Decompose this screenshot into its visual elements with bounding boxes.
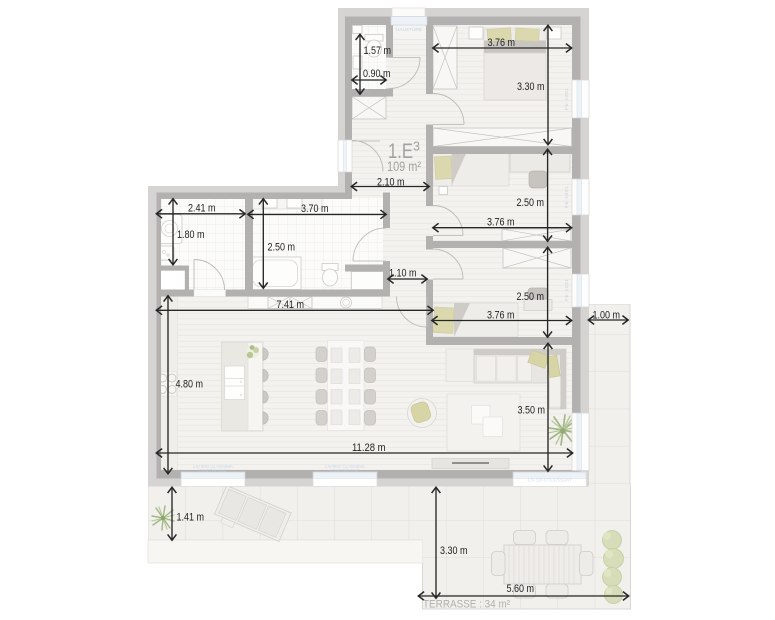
svg-text:109 m²: 109 m²: [387, 159, 421, 174]
svg-text:FE-1001: FE-1001: [564, 279, 570, 301]
svg-text:LIV-120 COULISSANT: LIV-120 COULISSANT: [528, 478, 572, 484]
svg-text:1.80 m: 1.80 m: [177, 229, 205, 241]
svg-text:3.50 m: 3.50 m: [518, 405, 546, 417]
svg-text:1.41 m: 1.41 m: [177, 512, 205, 524]
svg-text:1.10 m: 1.10 m: [389, 268, 417, 280]
svg-text:2.10 m: 2.10 m: [377, 176, 405, 188]
svg-text:2.50 m: 2.50 m: [268, 242, 296, 254]
svg-text:2.50 m: 2.50 m: [517, 291, 545, 303]
svg-text:1.00 m: 1.00 m: [593, 310, 621, 322]
svg-text:FE-1001: FE-1001: [564, 88, 570, 110]
svg-text:3.76 m: 3.76 m: [487, 310, 515, 322]
svg-text:3.76 m: 3.76 m: [487, 217, 515, 229]
svg-text:3.30 m: 3.30 m: [517, 81, 545, 93]
svg-text:HAUSTÜRE: HAUSTÜRE: [396, 26, 422, 33]
svg-text:1.57 m: 1.57 m: [364, 45, 392, 57]
svg-text:TERRASSE : 34 m²: TERRASSE : 34 m²: [423, 599, 510, 611]
svg-text:7.41 m: 7.41 m: [277, 299, 305, 311]
svg-text:11.28 m: 11.28 m: [352, 442, 386, 454]
svg-text:4.80 m: 4.80 m: [176, 379, 204, 391]
svg-text:FENETRE BAIE: FENETRE BAIE: [330, 468, 360, 474]
svg-text:3.30 m: 3.30 m: [440, 545, 468, 557]
svg-text:FE-1001: FE-1001: [564, 186, 570, 208]
svg-text:2.50 m: 2.50 m: [517, 197, 545, 209]
svg-text:2.41 m: 2.41 m: [188, 203, 216, 215]
svg-text:0.90 m: 0.90 m: [363, 68, 391, 80]
svg-text:5.60 m: 5.60 m: [507, 583, 535, 595]
svg-text:3.70 m: 3.70 m: [301, 203, 329, 215]
svg-text:FENETRE BAIE: FENETRE BAIE: [198, 468, 228, 474]
svg-text:3.76 m: 3.76 m: [488, 37, 516, 49]
